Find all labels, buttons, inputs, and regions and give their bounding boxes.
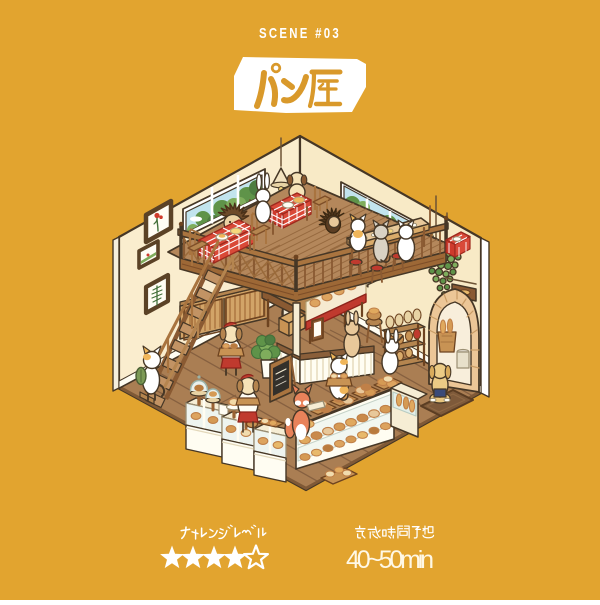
svg-text:40~50min: 40~50min [346,546,434,574]
svg-text:SCENE #03: SCENE #03 [259,25,341,42]
